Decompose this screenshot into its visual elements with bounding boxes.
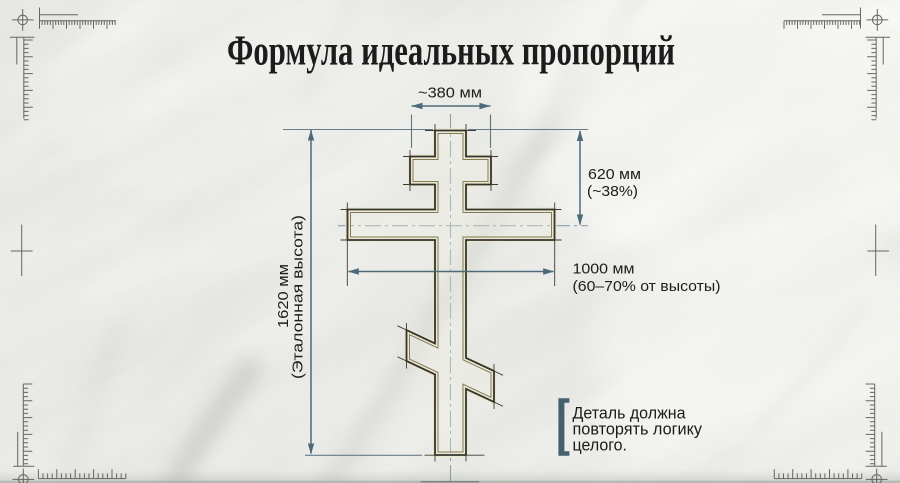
svg-text:1000 мм: 1000 мм <box>573 261 635 278</box>
svg-text:~380 мм: ~380 мм <box>418 85 482 102</box>
svg-text:(60–70% от высоты): (60–70% от высоты) <box>573 278 721 295</box>
svg-text:целого.: целого. <box>573 436 628 455</box>
svg-text:620 мм: 620 мм <box>588 166 641 183</box>
svg-text:Формула идеальных пропорций: Формула идеальных пропорций <box>227 29 675 75</box>
svg-text:(Эталонная высота): (Эталонная высота) <box>290 215 307 379</box>
svg-text:(~38%): (~38%) <box>587 183 638 200</box>
